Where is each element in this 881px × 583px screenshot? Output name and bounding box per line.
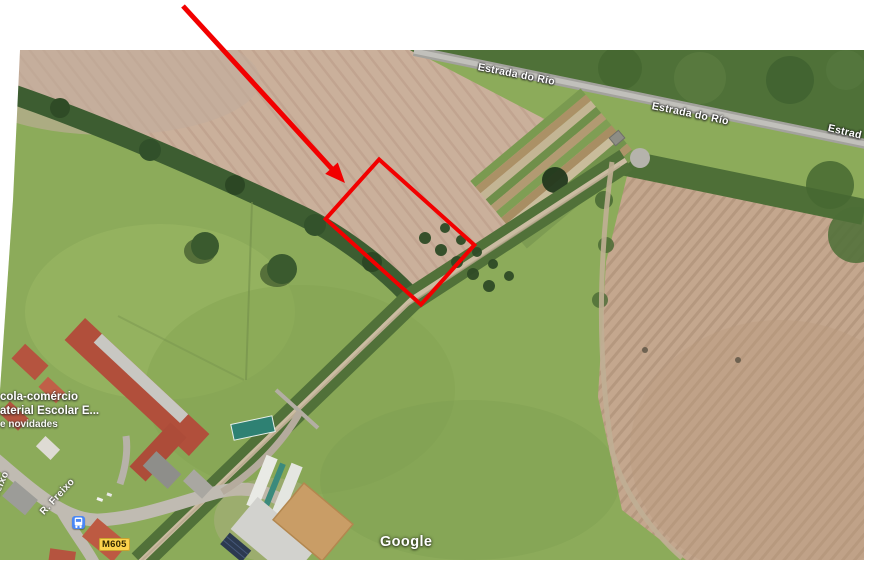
route-badge-m605: M605	[99, 538, 130, 551]
satellite-map[interactable]: Estrada do Río Estrada do Río Estrad col…	[0, 50, 864, 560]
poi-label-line: e novidades	[0, 418, 99, 432]
poi-label[interactable]: cola-comércio aterial Escolar E... e nov…	[0, 391, 99, 432]
poi-label-line: cola-comércio	[0, 391, 99, 405]
google-watermark: Google	[380, 534, 432, 550]
annotated-screenshot: Estrada do Río Estrada do Río Estrad col…	[0, 0, 881, 583]
bus-stop-icon[interactable]	[72, 516, 85, 529]
poi-label-line: aterial Escolar E...	[0, 405, 99, 419]
bus-glyph	[72, 516, 85, 529]
satellite-imagery	[0, 50, 864, 560]
